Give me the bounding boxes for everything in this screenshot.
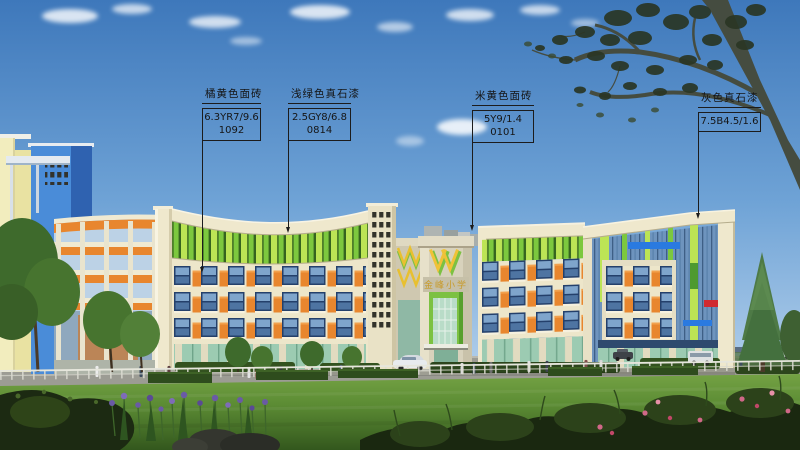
annotation-arrow [470, 225, 474, 231]
end-tower-grid-windows [366, 203, 398, 374]
entrance-tower: 金峰小学 [418, 236, 474, 375]
material-annotation-1: 橘黄色面砖 6.3YR7/9.6 1092 [202, 88, 261, 141]
annotation-title: 米黄色面砖 [472, 90, 534, 106]
rendering-canvas: 金峰小学 [0, 0, 800, 450]
annotation-leader-line [202, 141, 203, 267]
glass-curtain-tower [583, 210, 735, 374]
green-louver-band-right [482, 236, 585, 262]
annotation-spec-box: 2.5GY8/6.8 0814 [288, 108, 351, 141]
school-name-sign: 金峰小学 [424, 279, 468, 291]
annotation-leader-line [288, 141, 289, 227]
material-annotation-4: 灰色真石漆 7.5B4.5/1.6 [698, 92, 761, 132]
annotation-arrow [200, 267, 204, 273]
annotation-title: 浅绿色真石漆 [288, 88, 351, 104]
material-annotation-2: 浅绿色真石漆 2.5GY8/6.8 0814 [288, 88, 351, 141]
annotation-spec-box: 5Y9/1.4 0101 [472, 110, 534, 143]
annotation-arrow [286, 227, 290, 233]
main-classroom-building [153, 203, 398, 375]
material-annotation-3: 米黄色面砖 5Y9/1.4 0101 [472, 90, 534, 143]
inner-window-block [602, 260, 676, 350]
annotation-title: 橘黄色面砖 [202, 88, 261, 104]
architectural-rendering: 金峰小学 [0, 0, 800, 450]
window-rows [482, 258, 585, 340]
window-rows [174, 266, 366, 344]
annotation-leader-line [472, 143, 473, 225]
right-classroom-wing [478, 222, 585, 374]
annotation-leader-line [698, 132, 699, 213]
annotation-spec-box: 6.3YR7/9.6 1092 [202, 108, 261, 141]
link-bridge [396, 238, 422, 369]
annotation-title: 灰色真石漆 [698, 92, 761, 108]
annotation-arrow [696, 213, 700, 219]
annotation-spec-box: 7.5B4.5/1.6 [698, 112, 761, 132]
